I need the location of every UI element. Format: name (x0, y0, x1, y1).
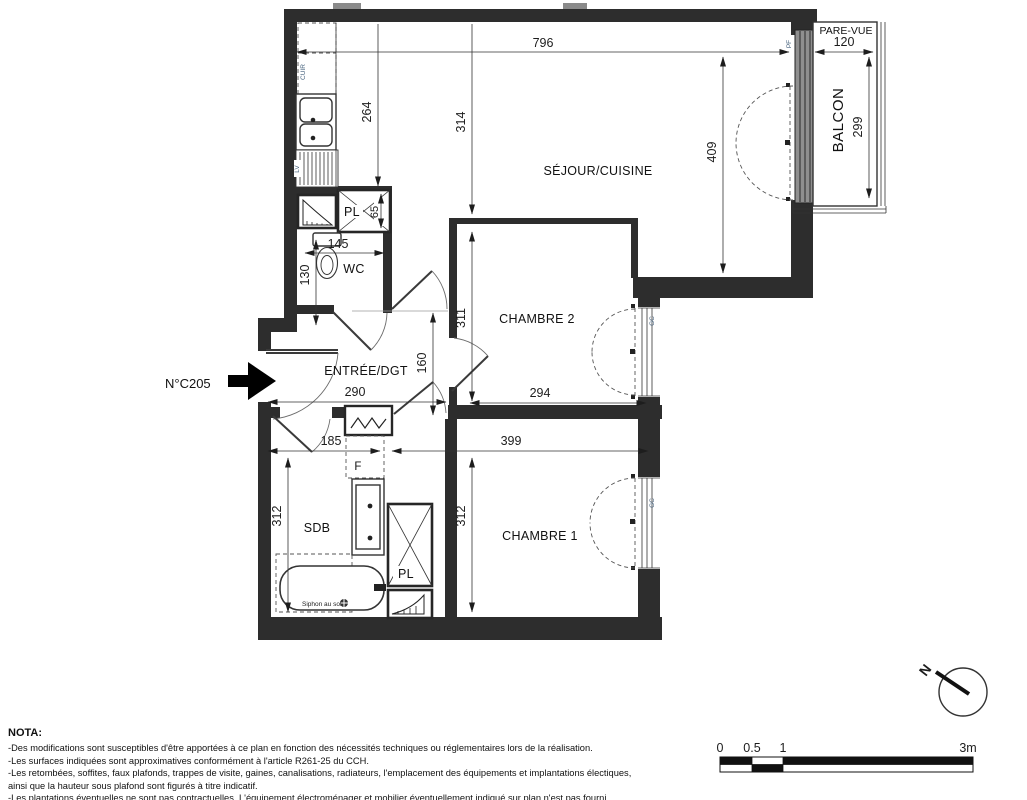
dim-160: 160 (415, 353, 429, 374)
scale-0: 0 (717, 741, 724, 755)
compass-north-label: N (916, 661, 935, 679)
kitchen-cuir-label: CUIR (300, 64, 307, 80)
nota-block: NOTA: -Des modifications sont susceptibl… (8, 727, 708, 800)
duct-lower (388, 590, 432, 618)
kitchen-lv-label: LV (294, 165, 301, 173)
bathroom-fixtures: Siphon au sol (276, 479, 386, 612)
dim-294: 294 (530, 386, 551, 400)
scale-bar: 0 0.5 1 3m (717, 741, 977, 772)
balcony-bay-window: PF (736, 30, 813, 203)
closet-pl-lower: PL (388, 504, 432, 586)
north-compass: N (916, 661, 987, 716)
closet-pl-upper: PL 65 (338, 190, 390, 232)
dim-312-sdb: 312 (270, 506, 284, 527)
appliance-f-slot: F (346, 436, 384, 478)
scale-3m: 3m (959, 741, 976, 755)
floor-plan-drawing: GC GC PF PARE-VUE (0, 0, 1027, 800)
dim-399: 399 (501, 434, 522, 448)
sejour-label: SÉJOUR/CUISINE (543, 163, 652, 178)
duct-upper (298, 195, 336, 228)
closet-pl-upper-label: PL (344, 205, 360, 219)
window-chambre1: GC (590, 474, 660, 570)
scale-1: 1 (780, 741, 787, 755)
entree-label: ENTRÉE/DGT (324, 363, 408, 378)
dim-409: 409 (705, 142, 719, 163)
sdb-label: SDB (304, 521, 331, 535)
window-label-pf: PF (786, 40, 793, 48)
chambre1-label: CHAMBRE 1 (502, 529, 578, 543)
window-label-gc-ch1: GC (649, 498, 656, 508)
radiator (345, 406, 392, 435)
dim-312-ch1: 312 (454, 506, 468, 527)
dim-290: 290 (345, 385, 366, 399)
kitchen-units: CUIR LV (294, 23, 338, 187)
floor-plan-page: GC GC PF PARE-VUE (0, 0, 1027, 800)
unit-entry: N°C205 (165, 362, 276, 400)
dim-130: 130 (298, 265, 312, 286)
scale-05: 0.5 (743, 741, 760, 755)
dim-120: 120 (834, 35, 855, 49)
window-label-gc-ch2: GC (649, 316, 656, 326)
dim-299: 299 (851, 117, 865, 138)
entry-arrow-icon (228, 362, 276, 400)
balcon-label: BALCON (830, 88, 847, 153)
wc-label: WC (343, 262, 364, 276)
unit-number-label: N°C205 (165, 376, 211, 391)
window-chambre2: GC (592, 304, 660, 399)
nota-line: -Les retombées, soffites, faux plafonds,… (8, 767, 708, 780)
dim-pl-height: 65 (369, 206, 381, 218)
dim-796: 796 (533, 36, 554, 50)
chambre2-label: CHAMBRE 2 (499, 312, 575, 326)
neighbour-wall-nubs (333, 3, 587, 9)
closet-pl-lower-label: PL (398, 567, 414, 581)
nota-title: NOTA: (8, 727, 708, 739)
dim-185: 185 (321, 434, 342, 448)
siphon-label: Siphon au sol (302, 601, 342, 608)
nota-line: ainsi que la hauteur sous plafond sont f… (8, 780, 708, 793)
dim-314: 314 (454, 112, 468, 133)
dim-145: 145 (328, 237, 349, 251)
appliance-f-label: F (354, 461, 361, 473)
nota-line: -Des modifications sont susceptibles d'ê… (8, 742, 708, 755)
dim-264: 264 (360, 102, 374, 123)
nota-line: -Les plantations éventuelles ne sont pas… (8, 792, 708, 800)
dim-311: 311 (454, 308, 468, 328)
nota-line: -Les surfaces indiquées sont approximati… (8, 755, 708, 768)
